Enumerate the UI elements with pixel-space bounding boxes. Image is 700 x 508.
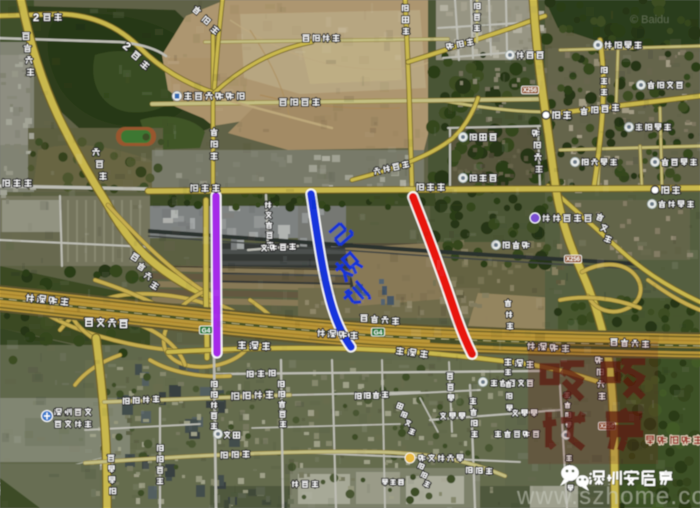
svg-text:© Baidu: © Baidu	[630, 14, 669, 26]
svg-text:G4: G4	[202, 327, 211, 334]
svg-text:X256: X256	[566, 257, 581, 263]
svg-text:www.szhome.com: www.szhome.com	[516, 483, 700, 508]
